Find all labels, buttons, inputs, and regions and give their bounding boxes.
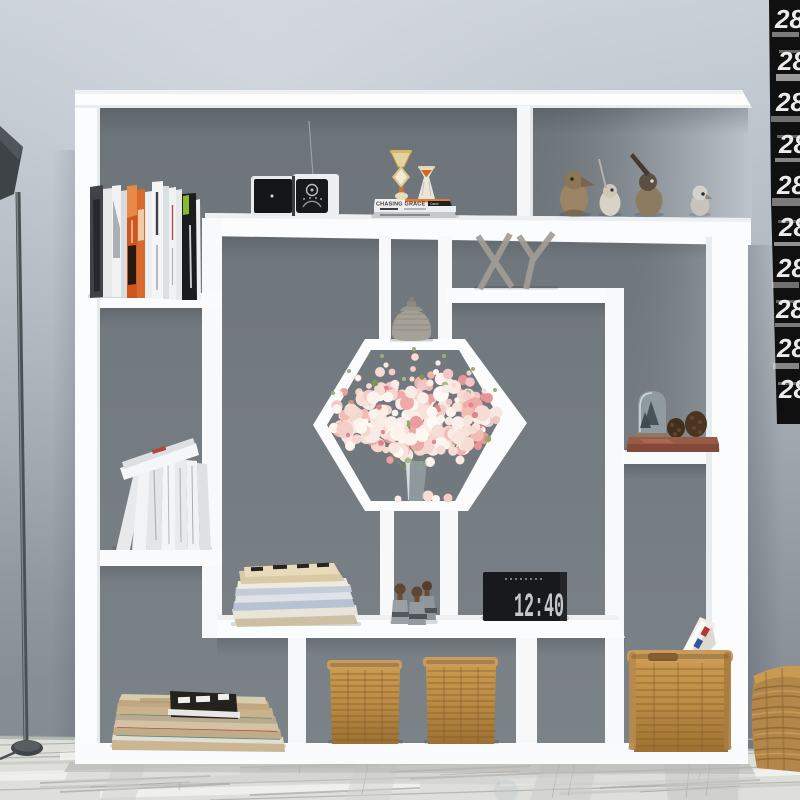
svg-text:CHASING GRACE: CHASING GRACE [376, 202, 425, 208]
svg-text:28: 28 [776, 170, 800, 200]
svg-text:28: 28 [776, 333, 800, 363]
svg-text:28: 28 [778, 374, 800, 404]
svg-text:28: 28 [774, 4, 800, 34]
svg-text:28: 28 [778, 212, 800, 242]
svg-text:28: 28 [775, 87, 800, 117]
svg-text:28: 28 [778, 129, 800, 159]
svg-text:28: 28 [776, 253, 800, 283]
svg-text:Carol: Carol [430, 202, 439, 206]
svg-text:28: 28 [775, 294, 800, 324]
svg-text:12:40: 12:40 [514, 589, 564, 627]
